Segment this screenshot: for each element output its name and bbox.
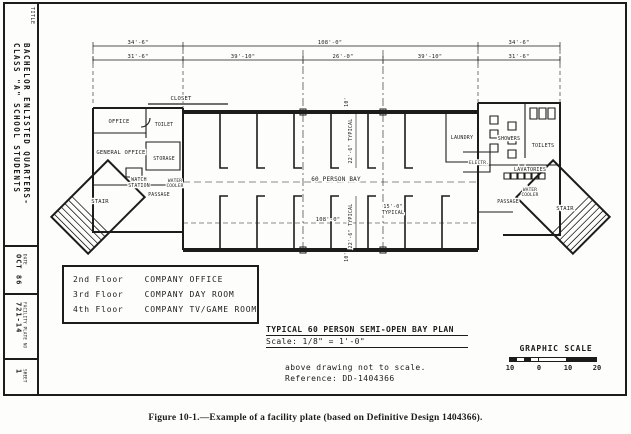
bay-plan-title-block: TYPICAL 60 PERSON SEMI-OPEN BAY PLAN Sca… [266, 325, 468, 348]
dim-top-right: 34'-6" [508, 40, 529, 46]
sheet-value: 1 [15, 369, 23, 385]
label-closet: CLOSET [170, 96, 192, 102]
label-60-person-bay: 60 PERSON BAY [311, 176, 361, 183]
dim-top-mid: 108'-0" [318, 40, 343, 46]
floor-use: COMPANY DAY ROOM [145, 290, 235, 299]
label-showers: SHOWERS [498, 136, 520, 142]
floor-use: COMPANY OFFICE [145, 275, 224, 284]
table-row: 4th Floor COMPANY TV/GAME ROOM [73, 302, 257, 317]
label-water-cooler-left-2: COOLER [166, 183, 183, 189]
label-passage-right: PASSAGE [497, 199, 519, 205]
stair-wing-left [51, 160, 144, 253]
scale-bar-white [538, 357, 568, 362]
dimension-labels: 34'-6" 108'-0" 34'-6" 31'-6" 39'-10" 26'… [127, 40, 529, 60]
dim-bay-depth-bottom: 22'-6" TYPICAL [348, 204, 354, 249]
label-laundry: LAUNDRY [451, 135, 473, 141]
table-row: 2nd Floor COMPANY OFFICE [73, 272, 257, 287]
drawing-title-line1: BACHELOR ENLISTED QUARTERS- [21, 43, 31, 205]
dim-row2-2: 39'-10" [231, 54, 256, 60]
floor-use: COMPANY TV/GAME ROOM [145, 305, 257, 314]
facility-plate-no-label: FACILITY PLATE NO [23, 302, 28, 348]
facility-plate-no-cell: FACILITY PLATE NO 721-14 [5, 295, 37, 360]
title-cell: TITLE BACHELOR ENLISTED QUARTERS- CLASS … [5, 4, 37, 247]
floor-name: 3rd Floor [73, 287, 139, 302]
scale-tick: 20 [593, 364, 601, 372]
facility-plate-no-value: 721-14 [15, 302, 23, 350]
date-value: OCT 86 [15, 254, 23, 285]
title-block: TITLE BACHELOR ENLISTED QUARTERS- CLASS … [5, 4, 39, 394]
note-reference: Reference: DD-1404366 [285, 373, 426, 384]
bay-plan-scale: Scale: 1/8" = 1'-0" [266, 336, 468, 348]
table-row: 3rd Floor COMPANY DAY ROOM [73, 287, 257, 302]
label-office: OFFICE [108, 119, 129, 125]
scale-tick: 10 [564, 364, 572, 372]
label-electrical: ELECTR. [469, 160, 489, 166]
scale-tick: 10 [506, 364, 514, 372]
sheet-label: SHEET [23, 369, 28, 383]
label-watch-station-1: WATCH [131, 177, 146, 183]
graphic-scale-label: GRAPHIC SCALE [503, 344, 609, 353]
dim-ten-top: 10' [344, 97, 350, 107]
dim-row2-1: 31'-6" [127, 54, 148, 60]
floor-name: 4th Floor [73, 302, 139, 317]
floor-plan-drawing: 34'-6" 108'-0" 34'-6" 31'-6" 39'-10" 26'… [37, 4, 623, 264]
label-watch-station-2: STATION [128, 183, 150, 189]
date-label: DATE [23, 254, 28, 283]
label-lavatories: LAVATORIES [514, 167, 546, 173]
note-not-to-scale: above drawing not to scale. [285, 362, 426, 373]
label-passage-left: PASSAGE [148, 192, 170, 198]
dim-ten-bottom: 10' [344, 252, 350, 262]
dim-top-left: 34'-6" [127, 40, 148, 46]
graphic-scale-numbers: 10 0 10 20 [503, 364, 609, 374]
sheet-cell: SHEET 1 [5, 360, 37, 394]
figure-caption: Figure 10-1.—Example of a facility plate… [0, 413, 631, 423]
dim-bay-width: 108'-0" [316, 217, 341, 223]
dim-typical-width-2: TYPICAL [382, 210, 404, 216]
floor-name: 2nd Floor [73, 272, 139, 287]
dim-row2-4: 39'-10" [418, 54, 443, 60]
scanned-document-page: TITLE BACHELOR ENLISTED QUARTERS- CLASS … [0, 0, 631, 434]
dim-row2-3: 26'-0" [332, 54, 353, 60]
dim-row2-5: 31'-6" [508, 54, 529, 60]
label-stair-left: STAIR [91, 199, 109, 205]
dim-bay-depth-top: 22'-6" TYPICAL [348, 119, 354, 164]
label-water-cooler-right-2: COOLER [521, 192, 538, 198]
label-toilet: TOILET [155, 122, 174, 128]
title-label: TITLE [29, 7, 35, 25]
scale-bar-black [567, 357, 597, 362]
graphic-scale: GRAPHIC SCALE 10 0 10 20 [503, 344, 609, 374]
bay-plan-title: TYPICAL 60 PERSON SEMI-OPEN BAY PLAN [266, 325, 468, 336]
date-cell: DATE OCT 86 [5, 247, 37, 295]
label-general-office: GENERAL OFFICE [96, 150, 145, 156]
upper-floor-use-table: 2nd Floor COMPANY OFFICE 3rd Floor COMPA… [62, 265, 259, 324]
graphic-scale-bar [509, 357, 597, 362]
label-toilets: TOILETS [532, 143, 554, 149]
scale-tick: 0 [537, 364, 541, 372]
drawing-notes: above drawing not to scale. Reference: D… [285, 362, 426, 384]
label-storage: STORAGE [153, 156, 175, 162]
facility-plate-border: TITLE BACHELOR ENLISTED QUARTERS- CLASS … [3, 2, 627, 396]
drawing-title-line2: CLASS "A" SCHOOL STUDENTS [11, 43, 21, 205]
label-stair-right: STAIR [556, 206, 574, 212]
drawing-title: BACHELOR ENLISTED QUARTERS- CLASS "A" SC… [11, 43, 31, 205]
scale-bar-checker [509, 357, 538, 362]
